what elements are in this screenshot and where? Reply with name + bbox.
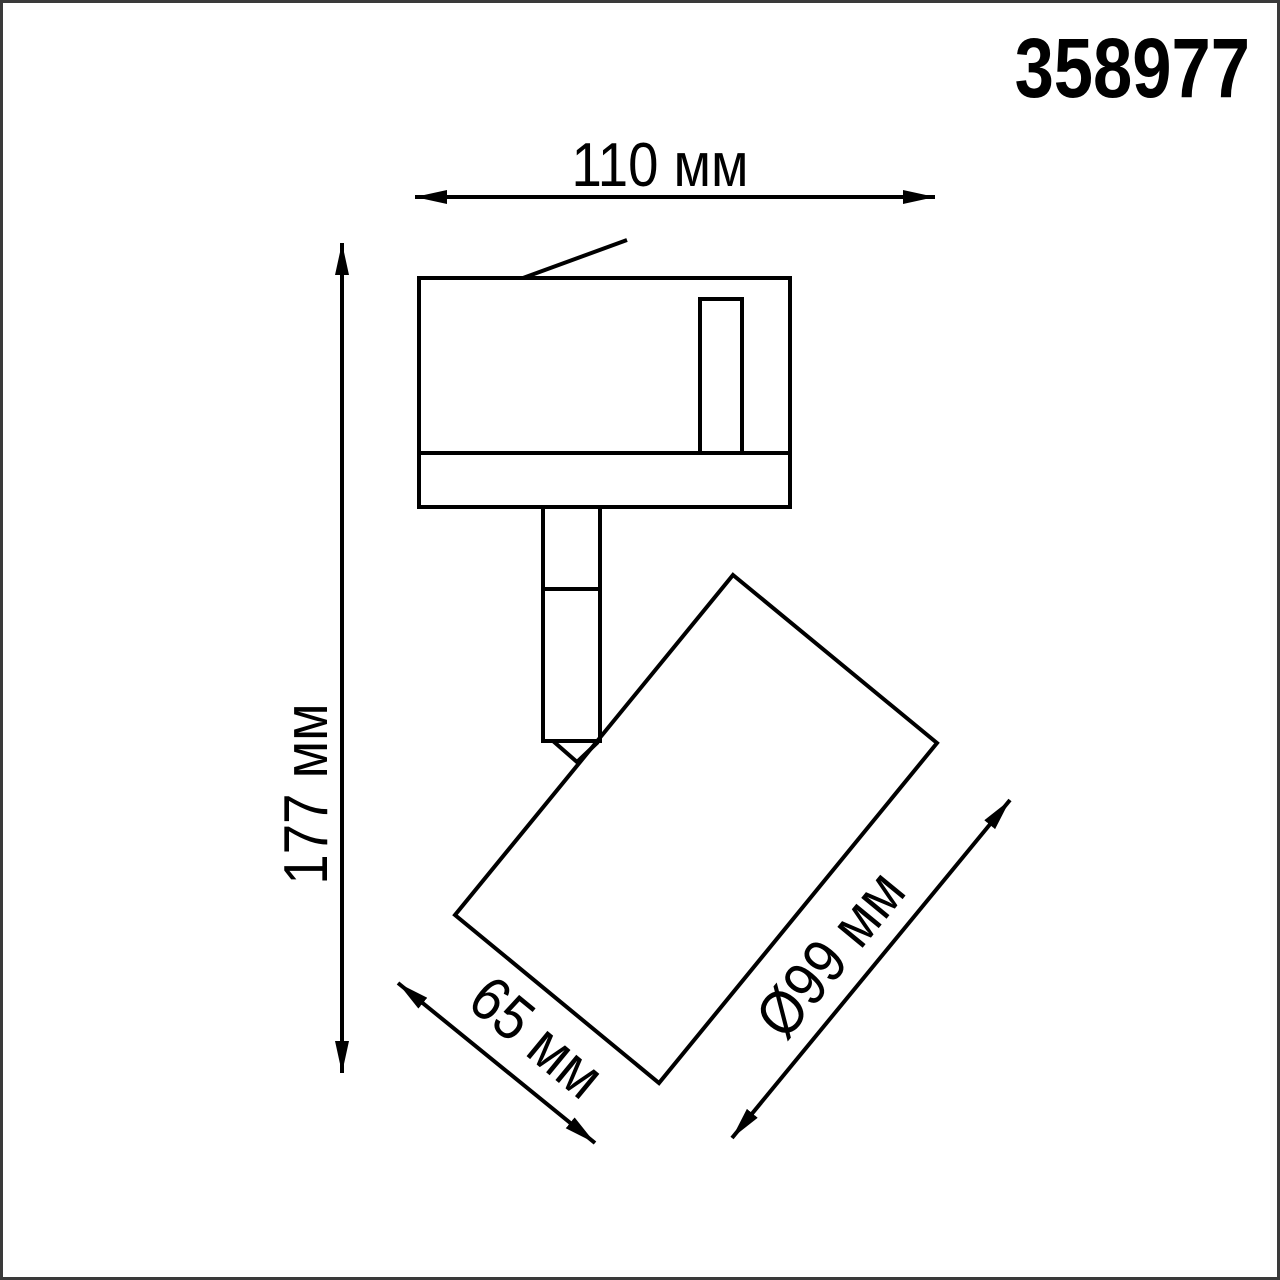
dim-overall-height-label: 177 мм [272,703,341,884]
adapter-leader-line [523,240,627,278]
article-number: 358977 [1015,22,1250,115]
spotlight-dimension-diagram: 358977 110 мм 177 мм 65 мм Ø99 мм [0,0,1280,1280]
stem-outline [543,507,600,741]
dim-overall-width-label: 110 мм [571,131,748,200]
technical-drawing: 358977 110 мм 177 мм 65 мм Ø99 мм [0,0,1280,1280]
dimension-arrows-group [342,197,1010,1143]
dim-head-diameter-label: Ø99 мм [743,858,919,1051]
dim-head-width-label: 65 мм [456,963,616,1112]
adapter-slot-outline [700,299,742,453]
track-adapter-outline [419,278,790,507]
